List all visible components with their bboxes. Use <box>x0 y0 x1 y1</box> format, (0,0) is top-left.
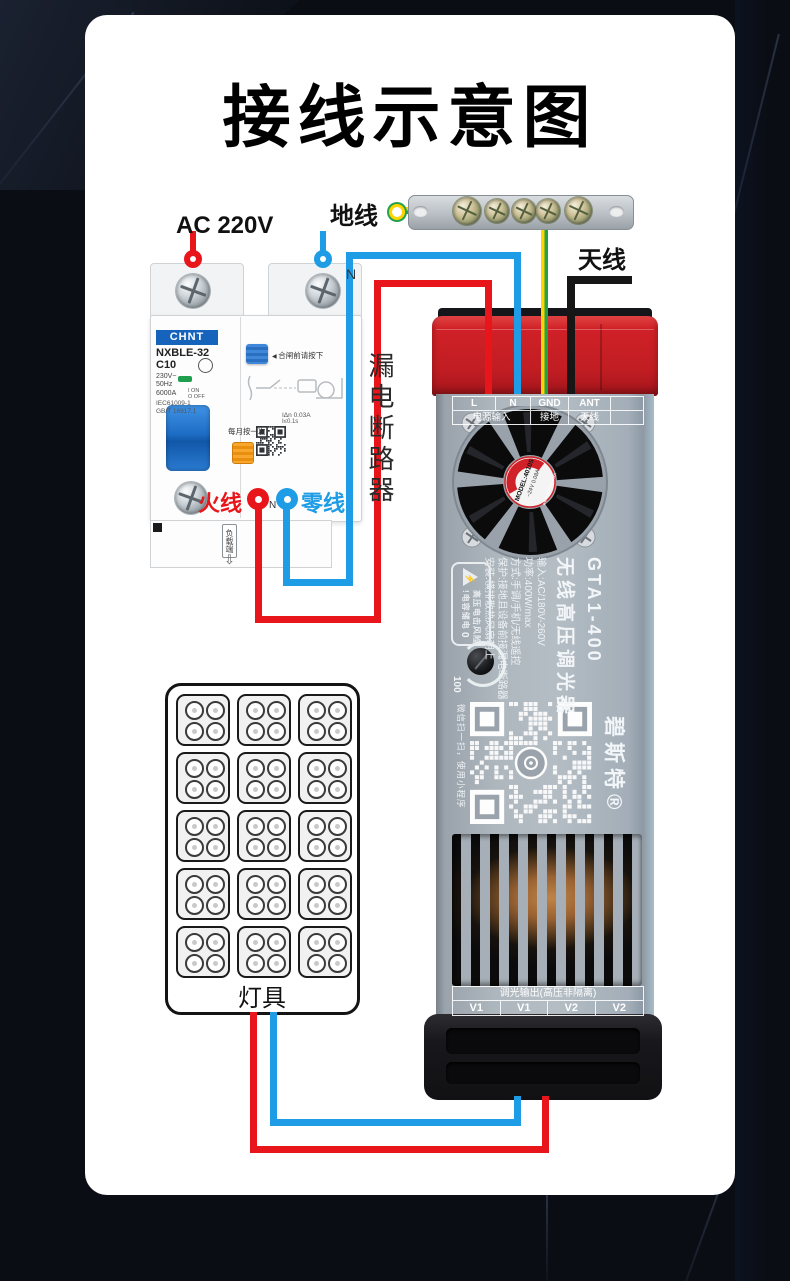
lamp-led <box>206 838 225 857</box>
neutral-output-wire <box>270 1119 521 1126</box>
neutral-wire <box>514 252 521 394</box>
breaker-reset-button[interactable] <box>246 344 268 364</box>
lamp-module <box>237 868 291 920</box>
lamp-led <box>307 780 326 799</box>
label-blank <box>611 411 643 424</box>
lamp-led <box>328 933 347 952</box>
antenna-wire <box>567 276 632 284</box>
lamp-led <box>185 875 204 894</box>
ac-input-label: AC 220V <box>176 212 273 240</box>
output-title: 调光输出(高压非隔离) <box>453 987 643 1000</box>
lamp-led <box>206 780 225 799</box>
breaker-n-top-label: N <box>346 266 356 282</box>
live-wire <box>485 280 492 394</box>
lamp-led <box>185 759 204 778</box>
busbar-screw-icon <box>512 199 536 223</box>
lamp-led <box>246 817 265 836</box>
breaker-model: NXBLE-32 <box>156 347 209 359</box>
lamp-module <box>176 752 230 804</box>
lamp-led <box>307 933 326 952</box>
lamp-led <box>246 701 265 720</box>
lamp-module <box>237 752 291 804</box>
lamp-led <box>328 954 347 973</box>
antenna-wire <box>567 276 575 394</box>
breaker-n-bottom-label: N <box>269 500 276 511</box>
terminal-screw-icon <box>306 274 340 308</box>
neutral-label: 零线 <box>301 486 345 518</box>
breaker-lower-plate <box>150 520 332 568</box>
label-antenna: 天线 <box>569 411 611 424</box>
lamp-led <box>267 722 286 741</box>
lamp-module <box>298 810 352 862</box>
busbar-hole <box>609 206 624 217</box>
lamp-led <box>267 896 286 915</box>
label-ground: 接地 <box>531 411 569 424</box>
busbar-screw-icon <box>485 199 509 223</box>
lamp-led <box>307 875 326 894</box>
busbar-screw-icon <box>565 197 592 224</box>
device-spec-line: 输入:AC/180V-260V <box>534 557 547 703</box>
breaker-standard-2: GB/T 16917.1 <box>156 408 196 415</box>
lamp-led <box>267 817 286 836</box>
lamp-module <box>237 926 291 978</box>
terminal-V2b: V2 <box>596 1001 644 1015</box>
load-arrow-icon: ⇩ <box>224 552 235 568</box>
lamp-panel <box>165 683 360 1015</box>
lamp-led <box>185 780 204 799</box>
live-terminal-dot <box>247 488 269 510</box>
ground-marker <box>389 204 405 220</box>
live-input-pin-head <box>184 250 202 268</box>
lamp-module <box>176 810 230 862</box>
live-output-wire <box>250 1012 257 1153</box>
live-output-wire <box>250 1146 549 1153</box>
lamp-led <box>267 933 286 952</box>
neutral-input-pin-head <box>314 250 332 268</box>
trip-schematic <box>246 372 348 408</box>
live-wire <box>255 499 262 620</box>
breaker-test-button[interactable] <box>232 442 254 464</box>
trip-time: I≤0.1s <box>282 419 298 425</box>
knob-min-label: 0 <box>459 632 470 638</box>
qr-caption: 微信扫一扫，使用小程序 <box>455 704 467 830</box>
device-bottom-cap <box>424 1014 662 1100</box>
lamp-led <box>267 875 286 894</box>
lamp-led <box>246 875 265 894</box>
neutral-output-wire <box>270 1012 277 1126</box>
lamp-led <box>328 759 347 778</box>
ccc-mark-icon <box>198 358 213 373</box>
lamp-led <box>185 722 204 741</box>
high-voltage-warning-label: ⚡ 高压电击风险 !电容储电 <box>451 562 491 646</box>
neutral-wire <box>283 499 290 583</box>
lamp-led <box>328 722 347 741</box>
lamp-led <box>246 896 265 915</box>
lamp-led <box>185 896 204 915</box>
terminal-L: L <box>453 397 496 410</box>
lamp-led <box>307 896 326 915</box>
lamp-led <box>246 722 265 741</box>
breaker-brand-badge: CHNT <box>156 330 218 345</box>
live-wire <box>374 280 492 287</box>
breaker-standard-1: IEC61009-1 <box>156 400 191 407</box>
page-title: 接线示意图 <box>85 62 735 161</box>
terminal-V1a: V1 <box>453 1001 501 1015</box>
device-spec-line: 方式:手调/手机/无线遥控 <box>508 557 521 703</box>
breaker-side-label: 漏电断路器 <box>362 352 399 507</box>
lamp-led <box>328 701 347 720</box>
breaker-frequency: 50Hz <box>156 381 172 388</box>
device-output-terminals: 调光输出(高压非隔离) V1 V1 V2 V2 <box>452 986 644 1016</box>
terminal-blank <box>611 397 643 410</box>
breaker-capacity: 6000A <box>156 390 176 397</box>
lamp-led <box>307 701 326 720</box>
lamp-led <box>267 838 286 857</box>
device-nameplate: GTA1-400 无线高压调光器 输入:AC/180V-260V 功率:400W… <box>482 557 604 703</box>
lamp-led <box>185 838 204 857</box>
lamp-led <box>206 759 225 778</box>
neutral-wire <box>346 252 353 586</box>
lamp-module <box>298 868 352 920</box>
background-panel <box>735 0 790 1281</box>
device-name: 无线高压调光器 <box>553 557 580 703</box>
terminal-GND: GND <box>531 397 569 410</box>
lamp-led <box>206 954 225 973</box>
lamp-led <box>267 780 286 799</box>
knob-max-label: 100 <box>451 676 462 693</box>
lamp-led <box>185 933 204 952</box>
lamp-led <box>328 838 347 857</box>
wiring-diagram-page: 接线示意图 L N GND ANT 电源输入 接地 天线 <box>0 0 790 1281</box>
neutral-wire <box>283 579 353 586</box>
terminal-V2a: V2 <box>548 1001 596 1015</box>
neutral-terminal-dot <box>276 488 298 510</box>
ground-wire <box>541 222 548 394</box>
vent-slots <box>452 834 642 986</box>
busbar-screw-icon <box>453 197 481 225</box>
warning-triangle-icon: ⚡ <box>464 568 479 586</box>
background-seam <box>546 1195 548 1281</box>
cap-groove <box>600 324 602 390</box>
lamp-led <box>206 722 225 741</box>
cap-recess <box>446 1028 640 1054</box>
lamp-led <box>246 838 265 857</box>
cap-recess <box>446 1062 640 1084</box>
lamp-led <box>246 954 265 973</box>
device-qr-code <box>470 702 592 824</box>
leakage-current: IΔn 0.03A <box>282 412 311 419</box>
lamp-led <box>328 875 347 894</box>
busbar-screw-icon <box>536 199 560 223</box>
lamp-module <box>298 752 352 804</box>
lamp-module <box>237 810 291 862</box>
device-brand: 碧斯特® <box>600 716 630 826</box>
lamp-led <box>267 701 286 720</box>
lamp-led <box>206 875 225 894</box>
press-note: ◀ 合闸前请按下 <box>272 350 323 361</box>
live-output-wire <box>542 1096 549 1153</box>
live-wire <box>255 616 381 623</box>
terminal-V1b: V1 <box>501 1001 549 1015</box>
label-power-input: 电源输入 <box>453 411 531 424</box>
lamp-led <box>307 759 326 778</box>
busbar-hole <box>413 206 428 217</box>
lamp-led <box>185 701 204 720</box>
terminal-screw-icon <box>176 274 210 308</box>
terminal-ANT: ANT <box>569 397 611 410</box>
lamp-led <box>307 838 326 857</box>
monthly-test-note: 每月按一次 <box>228 426 266 437</box>
lamp-led <box>206 933 225 952</box>
lamp-led <box>246 759 265 778</box>
lamp-module <box>176 868 230 920</box>
breaker-voltage: 230V~ <box>156 373 176 380</box>
lamp-led <box>206 701 225 720</box>
lamp-led <box>307 817 326 836</box>
lamp-label: 灯具 <box>238 978 286 1013</box>
lamp-module <box>298 926 352 978</box>
lamp-module <box>176 926 230 978</box>
terminal-N: N <box>496 397 531 410</box>
lamp-led <box>307 722 326 741</box>
breaker-rating: C10 <box>156 359 176 371</box>
neutral-wire <box>346 252 521 259</box>
device-input-terminals: L N GND ANT 电源输入 接地 天线 <box>452 396 644 425</box>
lamp-led <box>328 817 347 836</box>
antenna-label: 天线 <box>578 240 626 275</box>
lamp-led <box>185 954 204 973</box>
lamp-led <box>206 817 225 836</box>
device-model: GTA1-400 <box>583 557 604 703</box>
device-spec-line: 保护:接地且设备前接漏电断路器 <box>495 557 508 703</box>
live-label: 火线 <box>198 486 242 518</box>
lamp-module <box>237 694 291 746</box>
lamp-module <box>298 694 352 746</box>
lamp-led <box>328 780 347 799</box>
plate-notch <box>153 523 162 532</box>
lamp-led <box>267 759 286 778</box>
lamp-module <box>176 694 230 746</box>
lamp-led <box>206 896 225 915</box>
lightning-icon: ⚡ <box>465 573 476 584</box>
warning-text-1: 高压电击风险 <box>471 590 482 644</box>
cooling-fan: MODEL:4010S ~24V 0.08A www.ahfbdz.com <box>443 406 617 562</box>
lamp-led <box>185 817 204 836</box>
lamp-led <box>328 896 347 915</box>
lamp-led <box>246 780 265 799</box>
ground-label: 地线 <box>330 196 378 231</box>
lamp-led <box>267 954 286 973</box>
device-spec-line: 功率:400W/max <box>521 557 534 703</box>
lamp-led <box>246 933 265 952</box>
lamp-led <box>307 954 326 973</box>
breaker-indicator <box>178 376 192 382</box>
